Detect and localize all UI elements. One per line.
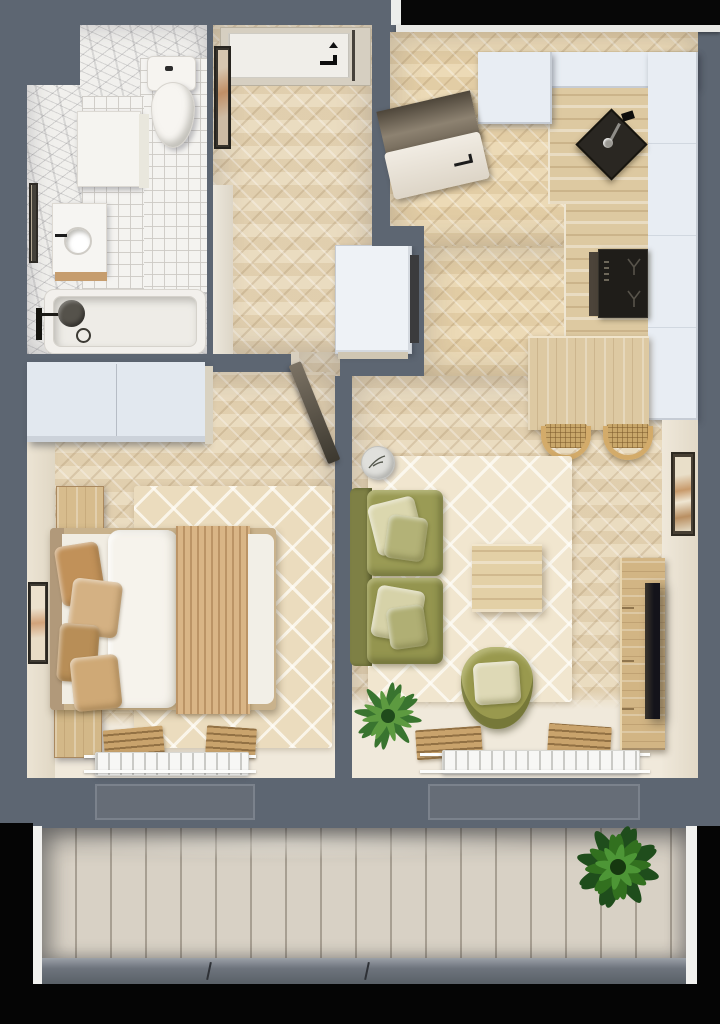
balcony-edge [40, 958, 688, 984]
hallway-closet [335, 245, 412, 354]
bed [50, 528, 276, 710]
sink-basin [64, 227, 92, 255]
bathroom-wall-face [213, 185, 233, 354]
tv-console-seam [622, 708, 634, 710]
bed-throw [176, 526, 250, 714]
balcony-side-frame-right [686, 826, 697, 986]
tv-console-seam [622, 660, 634, 662]
nightstand [54, 706, 102, 758]
wall-patch [372, 226, 424, 246]
closet-base [338, 352, 408, 359]
bathroom-mirror [29, 183, 38, 263]
dining-table [528, 336, 649, 430]
toilet-flush-button [165, 66, 173, 71]
sink-cup [603, 138, 613, 148]
closet-side-shadow [410, 255, 419, 343]
coffee-table [472, 544, 542, 612]
bedroom-wall-picture-art [31, 586, 45, 660]
balcony-plant [558, 808, 678, 926]
kitchen-window-glass [401, 0, 720, 25]
entry-door-jamb [352, 30, 355, 81]
rattan-stool [603, 424, 653, 460]
rattan-stool [541, 424, 591, 460]
living-radiator-rail [420, 770, 650, 773]
tv [645, 583, 660, 719]
sofa [350, 488, 444, 666]
window-frame-notch [391, 0, 401, 25]
bathroom-wall-notch [27, 25, 80, 85]
tv-console-seam [622, 607, 634, 609]
kitchen-window-sill [396, 25, 720, 32]
kitchen-counter-right-run [648, 52, 698, 420]
stool-back-arc [603, 426, 653, 460]
entry-door-handle [333, 55, 337, 65]
bedroom-window-outline [95, 784, 255, 820]
floor-plan-canvas [0, 0, 720, 1024]
vanity-wood-edge [55, 272, 107, 281]
oven-edge [589, 252, 598, 316]
wardrobe-side [205, 366, 213, 444]
balcony-side-frame-left [33, 826, 42, 988]
hall-mirror-glass [218, 50, 228, 145]
hob-burner-marks [598, 249, 648, 318]
living-wall-picture-art [675, 457, 691, 531]
washing-machine-side [139, 114, 149, 188]
wardrobe-door-seam [116, 364, 117, 436]
shower-handle-ring [76, 328, 91, 343]
bed-sheet-right [248, 534, 274, 704]
sofa-pillow [385, 604, 428, 651]
bedroom-radiator-rail [84, 770, 256, 773]
side-table-sprig [361, 446, 393, 478]
stool-back-arc [541, 426, 591, 460]
shower-head [58, 300, 85, 327]
outer-void-bottom [0, 984, 720, 1024]
entry-door [228, 33, 350, 78]
sofa-pillow [383, 513, 429, 562]
bed-pillow [69, 654, 122, 713]
sink-faucet [55, 234, 67, 237]
washing-machine [77, 111, 141, 187]
kitchen-upper-cabinet [478, 52, 552, 124]
armchair-pillow [473, 660, 522, 705]
